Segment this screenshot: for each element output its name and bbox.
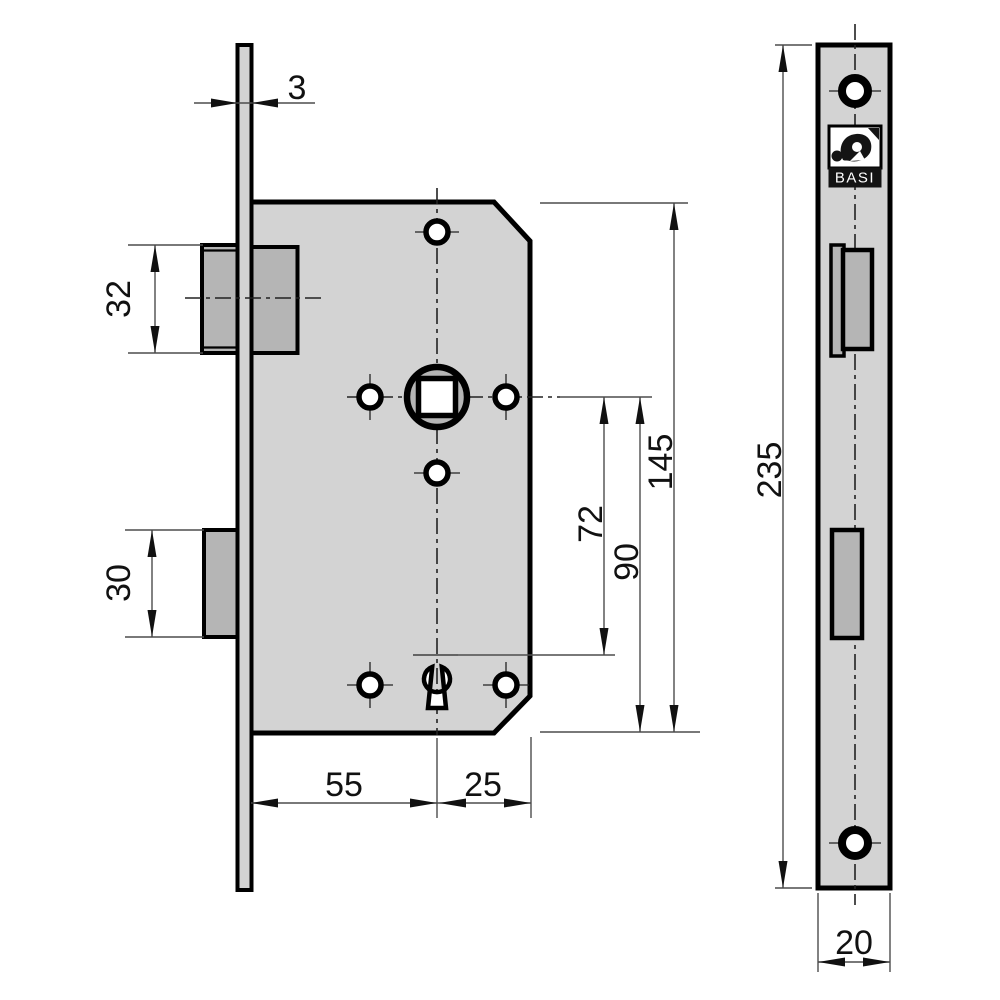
dim-arrow — [148, 610, 157, 637]
dim-value: 25 — [464, 766, 502, 804]
bottom-left-fixing-hole — [359, 674, 381, 696]
dim-arrow — [636, 705, 645, 732]
dim-deadbolt-height: 30 — [100, 530, 204, 637]
top-screw-hole — [842, 78, 868, 104]
dim-value: 55 — [325, 766, 363, 804]
faceplate-front-view — [238, 45, 252, 890]
drawing-canvas: BASI 3 32 — [0, 0, 1000, 1000]
latch-body-side — [843, 250, 872, 349]
dim-faceplate-thickness: 3 — [194, 69, 315, 108]
dim-value: 32 — [100, 280, 138, 318]
dim-value: 90 — [608, 543, 646, 581]
dim-arrow — [600, 628, 609, 655]
bottom-screw-hole — [842, 830, 868, 856]
dim-arrow — [211, 99, 238, 108]
dim-arrow — [252, 99, 279, 108]
mid-fixing-hole — [426, 462, 448, 484]
brand-label: BASI — [835, 170, 875, 187]
dim-arrow — [670, 203, 679, 230]
dim-arrow — [779, 45, 788, 72]
dim-latch-height: 32 — [100, 245, 203, 353]
dim-backset: 55 25 — [251, 737, 531, 818]
dim-value: 3 — [288, 69, 307, 107]
dim-arrow — [439, 799, 466, 808]
dim-value: 145 — [642, 434, 680, 491]
dim-arrow — [410, 799, 437, 808]
right-fixing-hole — [495, 386, 517, 408]
dim-arrow — [151, 326, 160, 353]
left-fixing-hole — [359, 386, 381, 408]
dim-arrow — [636, 397, 645, 424]
spindle-square-follower — [419, 379, 456, 416]
dim-arrow — [251, 799, 278, 808]
dim-faceplate-width: 20 — [818, 893, 890, 972]
dim-arrow — [151, 245, 160, 272]
top-fixing-hole — [426, 221, 448, 243]
dim-arrow — [779, 861, 788, 888]
dim-arrow — [670, 705, 679, 732]
dim-faceplate-length: 235 — [751, 45, 812, 888]
mortise-lock-technical-drawing: BASI 3 32 — [0, 0, 1000, 1000]
dim-arrow — [504, 799, 531, 808]
latch-bolt-rear — [252, 247, 298, 353]
side-view: BASI — [818, 24, 890, 905]
dim-arrow — [600, 397, 609, 424]
latch-bolt-head — [202, 245, 238, 353]
beaver-paw-dot — [832, 151, 843, 162]
dim-value: 20 — [835, 924, 873, 962]
bottom-right-fixing-hole — [495, 674, 517, 696]
dim-value: 72 — [572, 505, 610, 543]
dim-value: 235 — [751, 442, 789, 499]
deadbolt-side — [832, 530, 862, 638]
beaver-icon-detail — [852, 142, 862, 152]
dim-value: 30 — [100, 564, 138, 602]
dim-arrow — [148, 530, 157, 557]
basi-logo: BASI — [829, 126, 881, 187]
deadbolt-head — [204, 530, 239, 637]
front-view — [185, 45, 560, 890]
